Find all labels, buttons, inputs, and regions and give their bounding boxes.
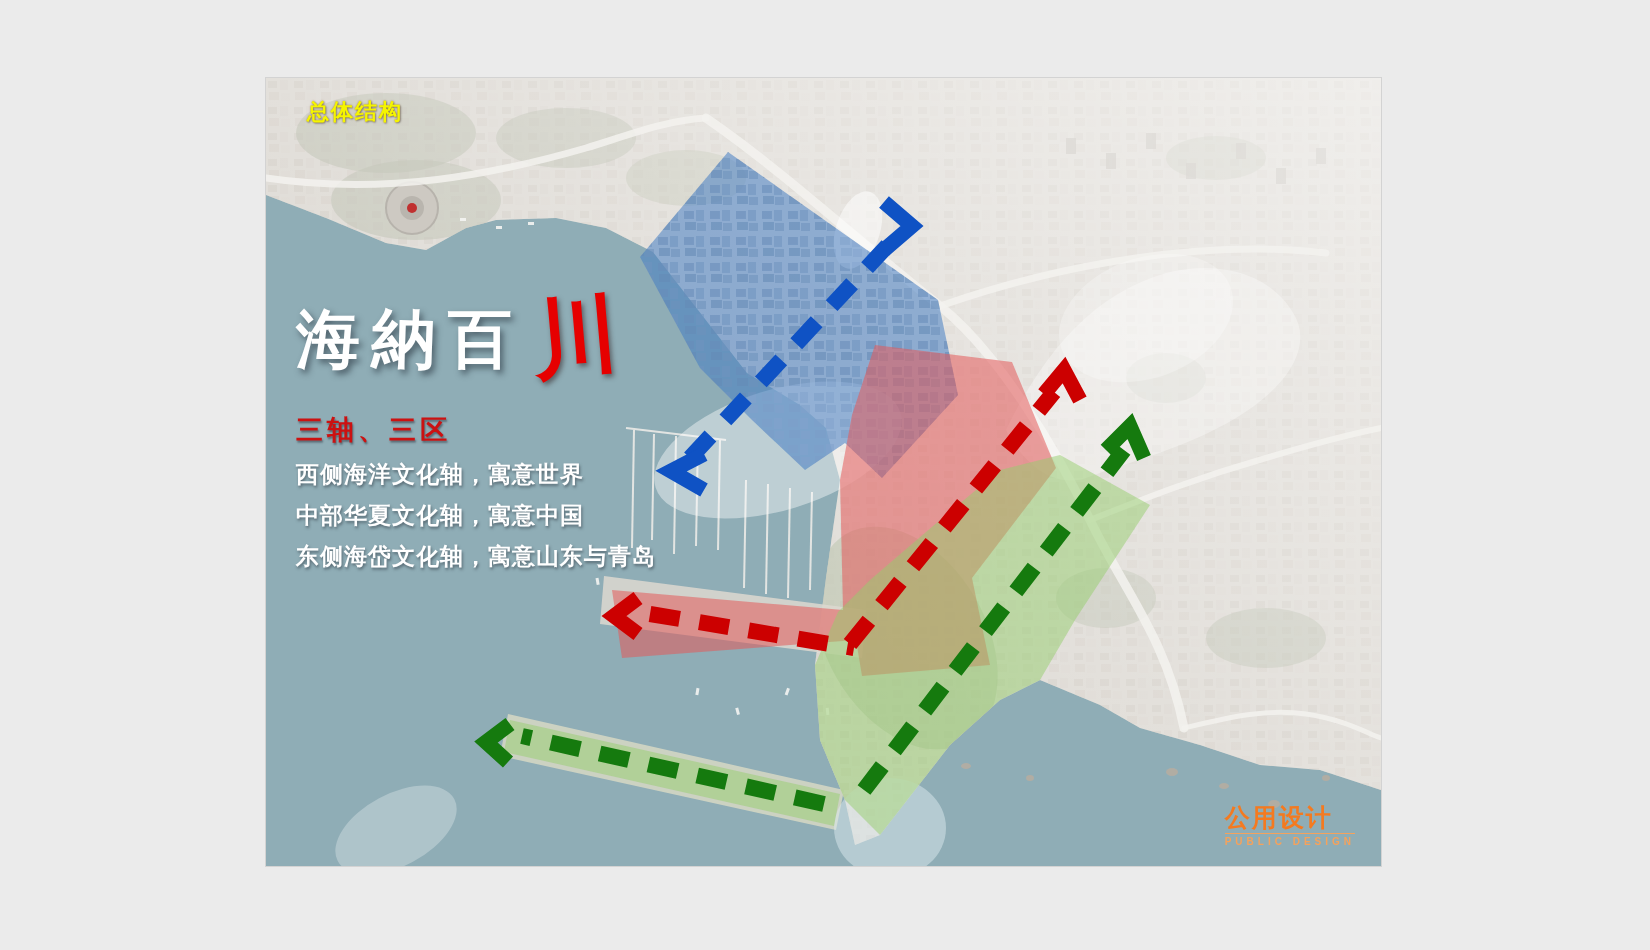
presentation-slide: 总体结构 海納百川 三轴、三区 西侧海洋文化轴，寓意世界 中部华夏文化轴，寓意中… [266, 78, 1381, 866]
desktop-background: 总体结构 海納百川 三轴、三区 西侧海洋文化轴，寓意世界 中部华夏文化轴，寓意中… [0, 0, 1650, 950]
site-map [266, 78, 1381, 866]
plaza-circle [386, 182, 438, 234]
